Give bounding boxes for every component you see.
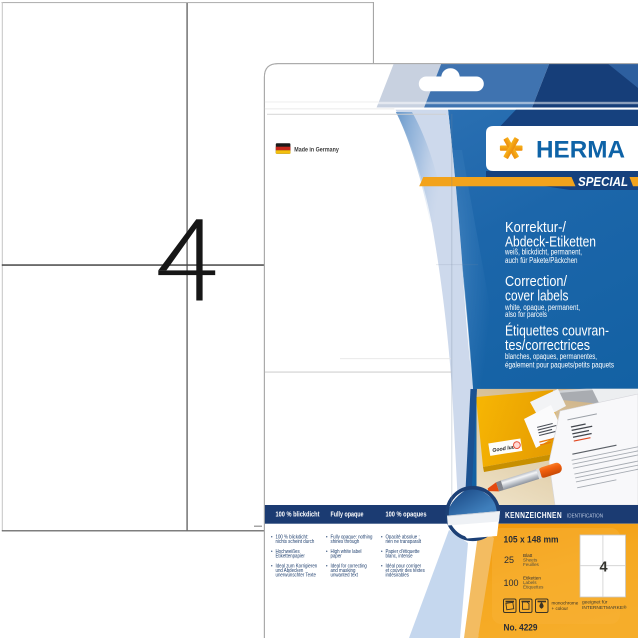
svg-text:Made in Germany: Made in Germany <box>294 146 339 153</box>
svg-text:100: 100 <box>504 578 519 588</box>
svg-text:nichts scheint durch: nichts scheint durch <box>276 539 315 546</box>
svg-text:•: • <box>326 535 328 540</box>
svg-text:HERMA: HERMA <box>536 136 625 163</box>
svg-text:•: • <box>381 535 383 540</box>
svg-text:indésirables: indésirables <box>386 572 410 579</box>
svg-text:+ colour: + colour <box>552 606 569 611</box>
svg-text:IDENTIFICATION: IDENTIFICATION <box>567 513 603 519</box>
svg-text:•: • <box>271 550 273 555</box>
svg-text:•: • <box>326 550 328 555</box>
svg-text:weiß, blickdicht, permanent,: weiß, blickdicht, permanent, <box>504 247 582 256</box>
svg-text:monochrome: monochrome <box>552 601 579 606</box>
svg-text:Etikettenpapier: Etikettenpapier <box>276 553 306 560</box>
svg-text:shines through: shines through <box>331 539 360 546</box>
svg-text:•: • <box>381 550 383 555</box>
svg-text:•: • <box>381 564 383 569</box>
svg-text:Fully opaque: Fully opaque <box>331 512 364 519</box>
svg-text:25: 25 <box>504 555 514 565</box>
svg-text:unwanted text: unwanted text <box>331 572 359 579</box>
svg-text:rien ne transparaît: rien ne transparaît <box>386 539 422 546</box>
svg-text:KENNZEICHNEN: KENNZEICHNEN <box>505 510 562 520</box>
svg-text:geeignet für: geeignet für <box>582 600 608 606</box>
svg-text:also for parcels: also for parcels <box>505 310 547 319</box>
svg-text:•: • <box>326 564 328 569</box>
svg-text:blanc, intense: blanc, intense <box>386 553 413 560</box>
svg-text:également pour paquets/petits: également pour paquets/petits paquets <box>505 360 614 369</box>
svg-text:No. 4229: No. 4229 <box>504 623 538 634</box>
svg-text:Feuilles: Feuilles <box>523 562 540 567</box>
svg-text:Étiquettes: Étiquettes <box>523 583 544 589</box>
svg-text:INTERNETMARKE®: INTERNETMARKE® <box>582 604 627 611</box>
svg-text:•: • <box>271 564 273 569</box>
svg-text:SPECIAL: SPECIAL <box>578 174 628 189</box>
svg-text:cover labels: cover labels <box>505 287 569 304</box>
svg-text:105 x 148 mm: 105 x 148 mm <box>504 535 559 546</box>
svg-text:auch für Pakete/Päckchen: auch für Pakete/Päckchen <box>505 256 578 265</box>
svg-text:100 % blickdicht: 100 % blickdicht <box>276 512 321 519</box>
svg-text:4: 4 <box>600 559 608 575</box>
svg-text:paper: paper <box>331 553 343 560</box>
svg-text:100 % opaques: 100 % opaques <box>386 512 427 519</box>
svg-text:unerwünschter Texte: unerwünschter Texte <box>276 572 317 579</box>
svg-text:•: • <box>271 535 273 540</box>
